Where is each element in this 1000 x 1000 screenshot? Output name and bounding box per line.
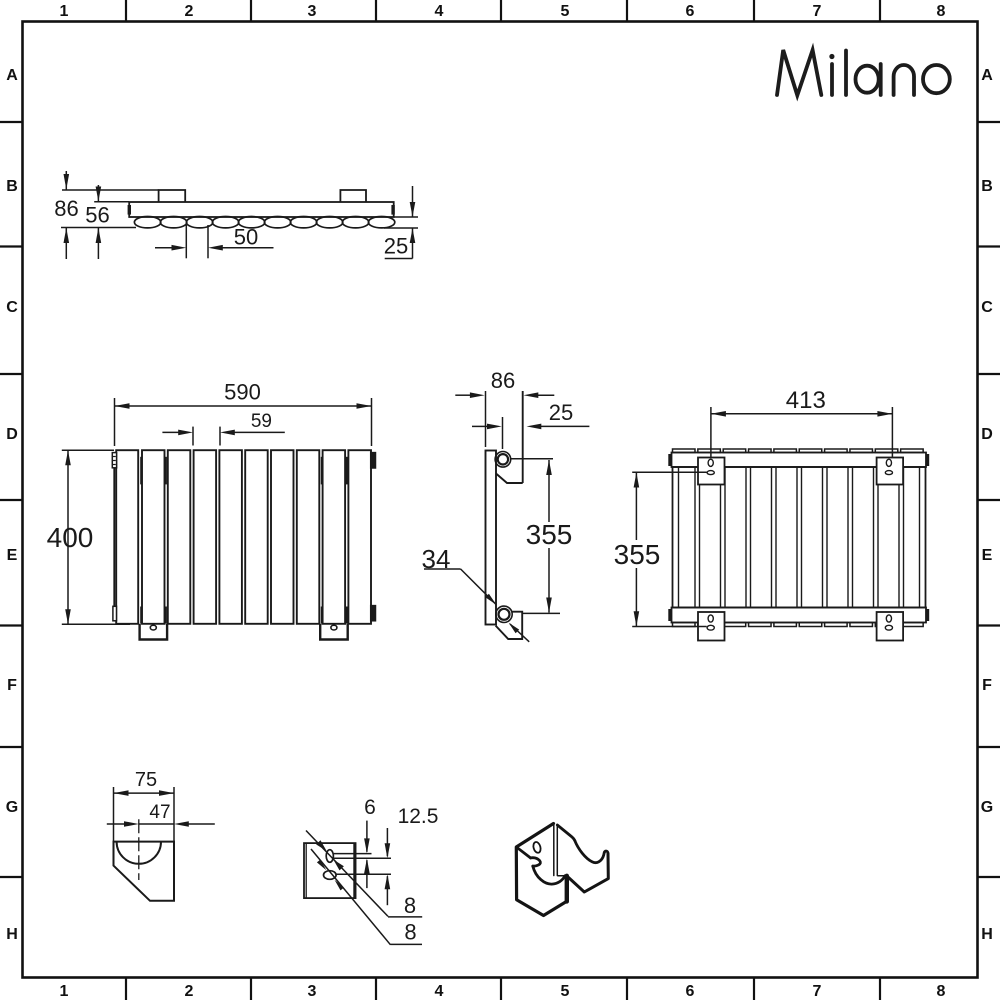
- svg-text:8: 8: [937, 3, 946, 20]
- svg-text:5: 5: [561, 3, 570, 20]
- svg-text:8: 8: [937, 983, 946, 1000]
- svg-text:B: B: [6, 178, 18, 195]
- svg-text:2: 2: [185, 983, 194, 1000]
- svg-text:G: G: [981, 799, 993, 816]
- svg-text:G: G: [6, 799, 18, 816]
- svg-text:A: A: [981, 67, 993, 84]
- svg-text:B: B: [981, 178, 993, 195]
- svg-text:F: F: [7, 677, 17, 694]
- svg-text:5: 5: [561, 983, 570, 1000]
- svg-text:1: 1: [60, 3, 69, 20]
- svg-text:4: 4: [435, 983, 444, 1000]
- svg-text:12.5: 12.5: [398, 805, 439, 828]
- svg-text:4: 4: [435, 3, 444, 20]
- svg-text:E: E: [982, 547, 993, 564]
- svg-text:F: F: [982, 677, 992, 694]
- svg-text:C: C: [981, 299, 993, 316]
- svg-text:400: 400: [47, 522, 94, 553]
- svg-text:E: E: [7, 547, 18, 564]
- svg-text:D: D: [981, 426, 993, 443]
- svg-text:1: 1: [60, 983, 69, 1000]
- svg-text:75: 75: [135, 769, 157, 791]
- svg-text:6: 6: [686, 983, 695, 1000]
- svg-text:355: 355: [614, 539, 661, 570]
- svg-text:A: A: [6, 67, 18, 84]
- svg-text:6: 6: [686, 3, 695, 20]
- svg-text:7: 7: [813, 983, 822, 1000]
- svg-text:C: C: [6, 299, 18, 316]
- svg-text:3: 3: [308, 3, 317, 20]
- svg-text:25: 25: [384, 234, 408, 259]
- svg-text:56: 56: [85, 203, 109, 228]
- svg-text:50: 50: [234, 225, 258, 250]
- svg-text:47: 47: [149, 802, 170, 823]
- svg-text:H: H: [6, 926, 18, 943]
- svg-text:590: 590: [224, 380, 261, 405]
- svg-text:34: 34: [422, 544, 451, 574]
- svg-text:8: 8: [404, 920, 416, 945]
- svg-text:2: 2: [185, 3, 194, 20]
- svg-text:86: 86: [54, 196, 78, 221]
- svg-text:6: 6: [364, 796, 376, 819]
- svg-text:7: 7: [813, 3, 822, 20]
- svg-text:355: 355: [526, 519, 573, 550]
- svg-text:59: 59: [251, 411, 272, 432]
- svg-text:H: H: [981, 926, 993, 943]
- svg-text:86: 86: [491, 368, 515, 393]
- svg-text:413: 413: [786, 387, 826, 414]
- svg-text:3: 3: [308, 983, 317, 1000]
- svg-text:25: 25: [549, 400, 573, 425]
- svg-text:D: D: [6, 426, 18, 443]
- svg-text:8: 8: [404, 893, 416, 918]
